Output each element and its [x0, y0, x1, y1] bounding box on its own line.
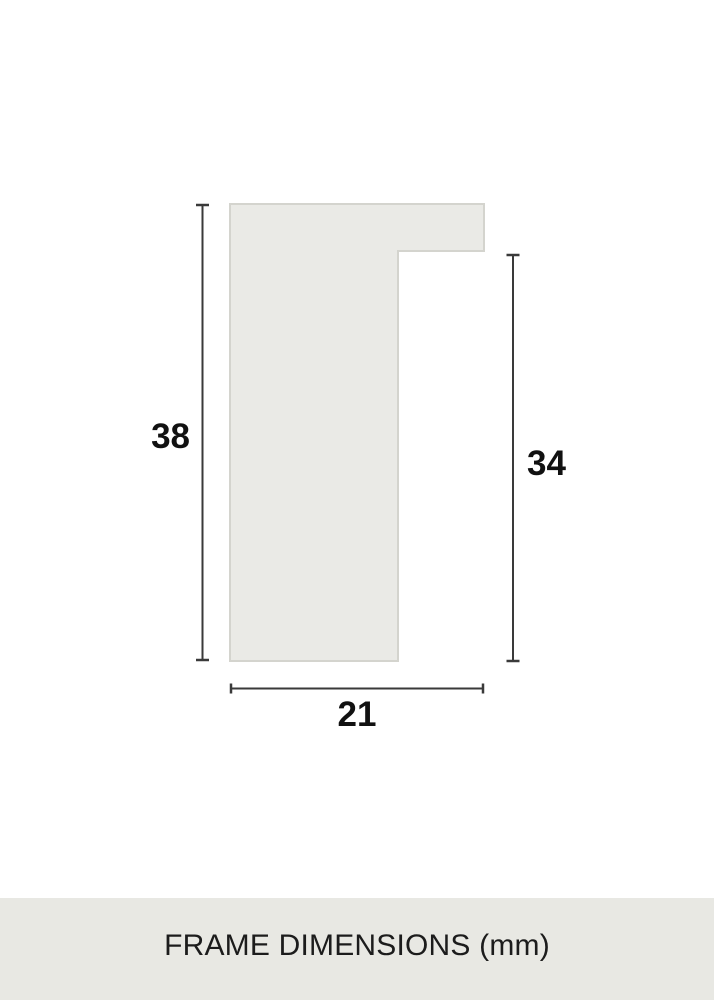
- rabbet-dimension-label: 34: [527, 444, 566, 483]
- width-dimension-label: 21: [338, 695, 377, 734]
- frame-profile-shape: [230, 204, 484, 661]
- footer-bar: FRAME DIMENSIONS (mm): [0, 898, 714, 1000]
- footer-label: FRAME DIMENSIONS (mm): [164, 929, 550, 963]
- height-dimension-label: 38: [151, 417, 190, 456]
- frame-profile-diagram: 38 34 21: [0, 0, 714, 898]
- frame-dimensions-page: 38 34 21 FRAME DIMENSIONS (mm): [0, 0, 714, 1000]
